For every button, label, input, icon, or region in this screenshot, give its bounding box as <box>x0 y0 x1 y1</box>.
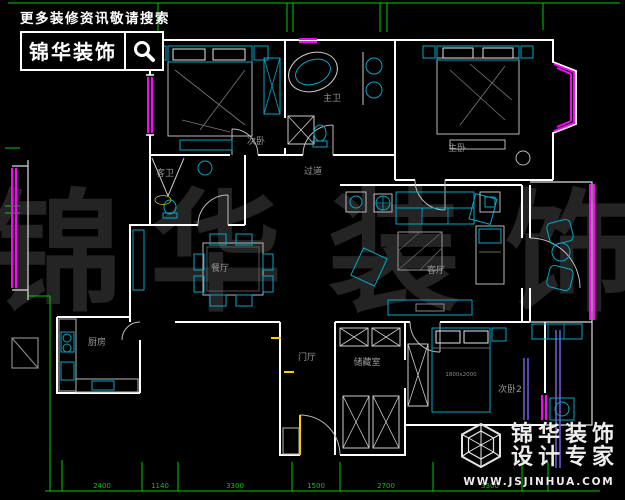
footer-brand-line1: 锦华装饰 <box>511 423 619 446</box>
room-label-living-room: 客厅 <box>427 264 445 276</box>
brand-search-box: 锦华装饰 <box>20 31 164 71</box>
dim-value: 1500 <box>307 482 325 490</box>
storage-shelves <box>340 328 400 448</box>
header-brand-block: 更多装修资讯敬请搜索 锦华装饰 <box>20 7 170 71</box>
brand-name: 锦华装饰 <box>22 33 124 69</box>
room-label-bedroom-bottom-right: 次卧2 <box>498 383 522 395</box>
dim-value: 3300 <box>226 482 244 490</box>
room-label-master-bathroom: 主卫 <box>323 92 341 104</box>
door-arcs <box>122 125 580 455</box>
entry-fixtures <box>283 428 299 454</box>
living-room-furniture <box>346 192 504 315</box>
cube-logo-icon <box>459 421 503 471</box>
room-label-dining-room: 餐厅 <box>211 262 229 274</box>
bed-top-left <box>152 46 280 150</box>
room-label-entry-hall: 门厅 <box>298 351 316 363</box>
room-label-guest-bathroom: 客卫 <box>156 167 174 179</box>
footer-brand-block: 锦华装饰 设计专家 WWW.JSJINHUA.COM <box>459 421 619 488</box>
cad-floorplan-screenshot: 锦 华 装 饰 2400 1140 3300 1500 2700 3300 <box>0 0 625 500</box>
dim-value: 2700 <box>377 482 395 490</box>
bedroom-br-furniture <box>408 328 506 412</box>
entry-door-leaf <box>271 338 300 455</box>
footer-brand-line2: 设计专家 <box>511 446 619 469</box>
search-icon <box>124 33 162 69</box>
dimension-values: 2400 1140 3300 1500 2700 3300 <box>93 482 499 490</box>
dining-set <box>133 230 273 306</box>
kitchen-fixtures <box>59 319 138 392</box>
room-label-kitchen: 厨房 <box>88 336 106 348</box>
dim-value: 1140 <box>151 482 169 490</box>
dim-value: 2400 <box>93 482 111 490</box>
master-bed <box>423 46 533 165</box>
tagline-text: 更多装修资讯敬请搜索 <box>20 7 170 27</box>
room-label-hallway: 过道 <box>304 165 322 177</box>
room-label-master-bedroom: 主卧 <box>448 142 466 154</box>
footer-website: WWW.JSJINHUA.COM <box>459 476 619 488</box>
room-labels: 次卧 主卫 主卧 客卫 过道 餐厅 客厅 厨房 门厅 储藏室 次卧2 1800x… <box>88 92 522 395</box>
room-label-bedroom-top-left: 次卧 <box>247 135 265 147</box>
room-label-storage-room: 储藏室 <box>353 356 380 368</box>
bed-size-label: 1800x2000 <box>445 372 477 378</box>
balcony-furniture <box>532 218 582 420</box>
